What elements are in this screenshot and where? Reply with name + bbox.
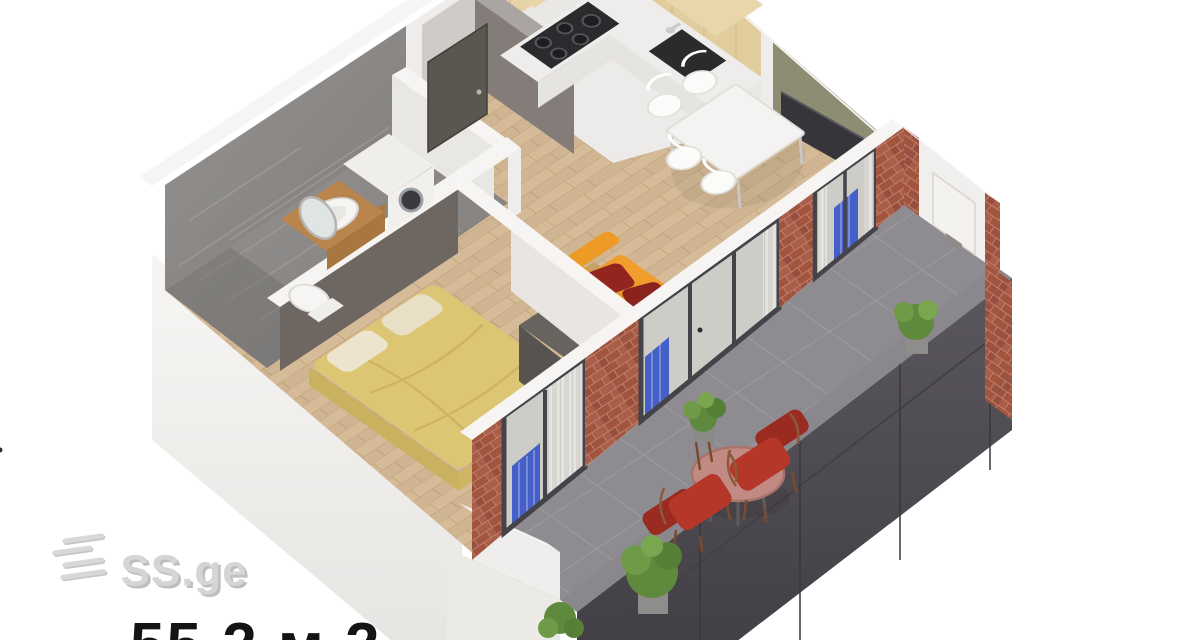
bathroom-bedroom-wall-white: [508, 148, 521, 220]
washing-machine-door: [400, 189, 422, 211]
logo-text: SS.ge: [121, 547, 248, 596]
floor-plan-render: SS.ge SS.ge 55.2 м 2: [0, 0, 1200, 640]
floor-plan-screenshot: SS.ge SS.ge 55.2 м 2: [0, 0, 1200, 640]
brick-pier-end-right: [985, 192, 1000, 273]
door-handle: [477, 90, 482, 95]
door-handle-living: [698, 328, 703, 333]
wall-segment-white: [761, 29, 773, 112]
area-caption: 55.2 м 2: [130, 611, 381, 640]
brick-pier-end-left: [904, 127, 919, 216]
